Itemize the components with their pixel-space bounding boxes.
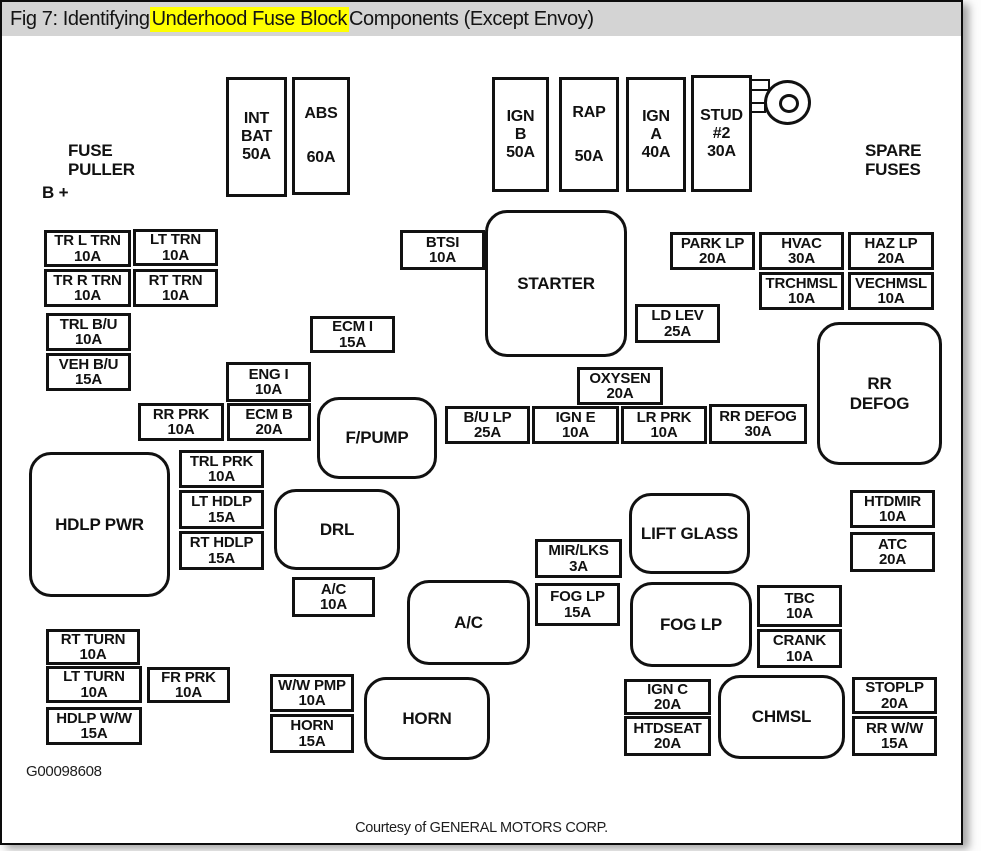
fuse-fr-prk-10a: FR PRK10A <box>147 667 230 703</box>
fuse-park-lp-20a: PARK LP20A <box>670 232 755 270</box>
fuse-label: 15A <box>299 734 326 750</box>
fuse-label: ABS <box>304 105 337 123</box>
fuse-puller-label-line2: PULLER <box>68 160 135 179</box>
relay-label: DRL <box>320 520 354 540</box>
relay-fog-lp: FOG LP <box>630 582 752 667</box>
fuse-label: 30A <box>745 424 772 440</box>
fuse-btsi-10a: BTSI10A <box>400 230 485 270</box>
fuse-label: INT <box>244 110 269 128</box>
fuse-label: HVAC <box>781 236 822 252</box>
fuse-label: RR PRK <box>153 407 209 423</box>
spare-fuses-label-line2: FUSES <box>865 160 921 179</box>
fuse-label: 30A <box>707 143 736 161</box>
fuse-label: TBC <box>784 591 814 607</box>
spare-fuses-label-line1: SPARE <box>865 141 921 160</box>
fuse-label: ECM B <box>245 407 292 423</box>
fuse-label: LR PRK <box>637 410 692 426</box>
fuse-trl-prk-10a: TRL PRK10A <box>179 450 264 488</box>
fuse-label: A <box>650 126 661 144</box>
fuse-tr-l-trn-10a: TR L TRN10A <box>44 230 131 267</box>
fuse-ld-lev-25a: LD LEV25A <box>635 304 720 343</box>
fuse-label: LT HDLP <box>191 494 252 510</box>
relay-label: STARTER <box>517 274 595 294</box>
relay-lift-glass: LIFT GLASS <box>629 493 750 574</box>
fuse-tbc-10a: TBC10A <box>757 585 842 627</box>
fuse-rap-50a: RAP50A <box>559 77 619 192</box>
fuse-trl-b-u-10a: TRL B/U10A <box>46 313 131 351</box>
ring-inner-circle <box>779 94 799 113</box>
fuse-ecm-i-15a: ECM I15A <box>310 316 395 353</box>
fuse-label: TRL PRK <box>190 454 253 470</box>
fuse-label: HDLP W/W <box>56 711 132 727</box>
fuse-label: A/C <box>321 582 346 598</box>
fuse-label: 50A <box>242 146 271 164</box>
fuse-crank-10a: CRANK10A <box>757 629 842 668</box>
fuse-ecm-b-20a: ECM B20A <box>227 403 311 441</box>
fuse-label: 10A <box>788 291 815 307</box>
fuse-int-bat-50a: INTBAT50A <box>226 77 287 197</box>
fuse-label: 10A <box>786 649 813 665</box>
fuse-label: RR DEFOG <box>719 409 797 425</box>
fuse-label: 3A <box>569 559 588 575</box>
fuse-w-w-pmp-10a: W/W PMP10A <box>270 674 354 712</box>
diagram-layer: FUSE PULLER B + SPARE FUSES G00098608 Co… <box>2 2 961 843</box>
fuse-label: BTSI <box>426 235 459 251</box>
fuse-label: 10A <box>74 249 101 265</box>
relay-hdlp-pwr: HDLP PWR <box>29 452 170 597</box>
fuse-label: 15A <box>208 551 235 567</box>
fuse-label: B <box>515 126 526 144</box>
fuse-label: 10A <box>562 425 589 441</box>
fuse-ign-b-50a: IGNB50A <box>492 77 549 192</box>
fuse-tr-r-trn-10a: TR R TRN10A <box>44 269 131 307</box>
fuse-label: PARK LP <box>681 236 744 252</box>
relay-f-pump: F/PUMP <box>317 397 437 479</box>
fuse-label: LT TURN <box>63 669 125 685</box>
fuse-stud-2-30a: STUD#230A <box>691 75 752 192</box>
relay-label: A/C <box>454 613 483 633</box>
fuse-label: 20A <box>607 386 634 402</box>
fuse-htdmir-10a: HTDMIR10A <box>850 490 935 528</box>
fuse-label: 10A <box>80 647 107 663</box>
fuse-label: STUD <box>700 107 743 125</box>
fuse-label: STOPLP <box>865 680 924 696</box>
fuse-label: 10A <box>208 469 235 485</box>
fuse-label: 15A <box>208 510 235 526</box>
fuse-label: 10A <box>320 597 347 613</box>
fuse-ign-e-10a: IGN E10A <box>532 406 619 444</box>
relay-label: FOG LP <box>660 615 722 635</box>
relay-drl: DRL <box>274 489 400 570</box>
fuse-label: VEH B/U <box>59 357 118 373</box>
relay-label: LIFT GLASS <box>641 524 738 544</box>
fuse-label: 10A <box>162 248 189 264</box>
fuse-label: 10A <box>81 685 108 701</box>
fuse-label: HAZ LP <box>865 236 918 252</box>
fuse-label: 15A <box>81 726 108 742</box>
fuse-oxysen-20a: OXYSEN20A <box>577 367 663 405</box>
fuse-label: IGN <box>507 108 535 126</box>
fuse-label: B/U LP <box>464 410 512 426</box>
fuse-label: OXYSEN <box>589 371 650 387</box>
fuse-label: #2 <box>713 125 730 143</box>
fuse-label: 20A <box>654 736 681 752</box>
fuse-label: LD LEV <box>651 308 703 324</box>
fuse-hdlp-w-w-15a: HDLP W/W15A <box>46 707 142 745</box>
fuse-puller-label-line1: FUSE <box>68 141 135 160</box>
fuse-atc-20a: ATC20A <box>850 532 935 572</box>
relay-label: DEFOG <box>850 394 909 414</box>
fuse-rr-w-w-15a: RR W/W15A <box>852 716 937 756</box>
fuse-lt-hdlp-15a: LT HDLP15A <box>179 490 264 529</box>
fuse-eng-i-10a: ENG I10A <box>226 362 311 402</box>
figure-id: G00098608 <box>26 763 102 780</box>
relay-horn: HORN <box>364 677 490 760</box>
fuse-rr-prk-10a: RR PRK10A <box>138 403 224 441</box>
fuse-label: 15A <box>75 372 102 388</box>
fuse-label: RR W/W <box>866 721 923 737</box>
fuse-rr-defog-30a: RR DEFOG30A <box>709 404 807 444</box>
fuse-vechmsl-10a: VECHMSL10A <box>848 272 934 310</box>
fuse-stoplp-20a: STOPLP20A <box>852 677 937 714</box>
fuse-lt-trn-10a: LT TRN10A <box>133 229 218 266</box>
fuse-label: 20A <box>881 696 908 712</box>
fuse-label: LT TRN <box>150 232 201 248</box>
fuse-lt-turn-10a: LT TURN10A <box>46 666 142 703</box>
fuse-rt-hdlp-15a: RT HDLP15A <box>179 531 264 570</box>
fuse-label: 25A <box>664 324 691 340</box>
fuse-label: TR L TRN <box>54 233 120 249</box>
fuse-label: IGN E <box>556 410 596 426</box>
fuse-label: 40A <box>642 144 671 162</box>
fuse-label: MIR/LKS <box>548 543 608 559</box>
relay-starter: STARTER <box>485 210 627 357</box>
fuse-label: 15A <box>564 605 591 621</box>
fuse-mir-lks-3a: MIR/LKS3A <box>535 539 622 578</box>
fuse-label: 10A <box>786 606 813 622</box>
relay-chmsl: CHMSL <box>718 675 845 759</box>
fuse-label: 50A <box>575 148 604 166</box>
relay-label: F/PUMP <box>345 428 408 448</box>
fuse-label: RT TURN <box>61 632 125 648</box>
fuse-label: HORN <box>290 718 333 734</box>
relay-a-c: A/C <box>407 580 530 665</box>
fuse-label: 20A <box>878 251 905 267</box>
fuse-ign-c-20a: IGN C20A <box>624 679 711 715</box>
fuse-label: TRL B/U <box>60 317 118 333</box>
fuse-label: BAT <box>241 128 272 146</box>
fuse-label: 15A <box>881 736 908 752</box>
fuse-puller-label: FUSE PULLER <box>68 141 135 179</box>
spare-fuse-ring-icon <box>746 76 818 130</box>
fuse-label: TR R TRN <box>53 273 121 289</box>
fuse-label: FOG LP <box>550 589 605 605</box>
fuse-label: 10A <box>878 291 905 307</box>
spare-fuses-label: SPARE FUSES <box>865 141 921 179</box>
b-plus-label: B + <box>42 183 68 202</box>
fuse-label: RAP <box>572 104 605 122</box>
fuse-label: 15A <box>339 335 366 351</box>
fuse-label: IGN <box>642 108 670 126</box>
fuse-label: 10A <box>75 332 102 348</box>
fuse-label: 20A <box>256 422 283 438</box>
fuse-label: 20A <box>879 552 906 568</box>
fuse-block-figure: Fig 7: Identifying Underhood Fuse Block … <box>0 0 963 845</box>
fuse-label: 10A <box>74 288 101 304</box>
fuse-label: 25A <box>474 425 501 441</box>
fuse-veh-b-u-15a: VEH B/U15A <box>46 353 131 391</box>
fuse-label: TRCHMSL <box>766 276 838 292</box>
fuse-abs-60a: ABS60A <box>292 77 350 195</box>
fuse-label: 20A <box>654 697 681 713</box>
fuse-label: 10A <box>651 425 678 441</box>
fuse-fog-lp-15a: FOG LP15A <box>535 583 620 626</box>
fuse-label: 60A <box>307 149 336 167</box>
fuse-rt-turn-10a: RT TURN10A <box>46 629 140 665</box>
fuse-label: 10A <box>429 250 456 266</box>
fuse-label: VECHMSL <box>855 276 927 292</box>
fuse-label: HTDMIR <box>864 494 921 510</box>
fuse-label: HTDSEAT <box>633 721 701 737</box>
courtesy-line: Courtesy of GENERAL MOTORS CORP. <box>2 820 961 836</box>
fuse-hvac-30a: HVAC30A <box>759 232 844 270</box>
fuse-ign-a-40a: IGNA40A <box>626 77 686 192</box>
fuse-label: RT HDLP <box>190 535 254 551</box>
fuse-label: 10A <box>168 422 195 438</box>
relay-label: CHMSL <box>752 707 811 727</box>
fuse-label: ECM I <box>332 319 373 335</box>
fuse-a-c-10a: A/C10A <box>292 577 375 617</box>
fuse-label: 30A <box>788 251 815 267</box>
relay-label: HDLP PWR <box>55 515 144 535</box>
fuse-rt-trn-10a: RT TRN10A <box>133 269 218 307</box>
fuse-label: 50A <box>506 144 535 162</box>
relay-label: HORN <box>402 709 451 729</box>
fuse-label: 10A <box>175 685 202 701</box>
fuse-b-u-lp-25a: B/U LP25A <box>445 406 530 444</box>
fuse-label: CRANK <box>773 633 826 649</box>
fuse-trchmsl-10a: TRCHMSL10A <box>759 272 844 310</box>
fuse-label: 10A <box>879 509 906 525</box>
fuse-label: ATC <box>878 537 907 553</box>
fuse-label: FR PRK <box>161 670 216 686</box>
fuse-label: IGN C <box>647 682 688 698</box>
fuse-label: 10A <box>299 693 326 709</box>
fuse-label: 20A <box>699 251 726 267</box>
fuse-horn-15a: HORN15A <box>270 714 354 753</box>
fuse-lr-prk-10a: LR PRK10A <box>621 406 707 444</box>
relay-rr-defog: RRDEFOG <box>817 322 942 465</box>
relay-label: RR <box>867 374 891 394</box>
fuse-label: RT TRN <box>149 273 203 289</box>
fuse-label: 10A <box>162 288 189 304</box>
fuse-label: W/W PMP <box>278 678 346 694</box>
fuse-label: 10A <box>255 382 282 398</box>
fuse-label: ENG I <box>249 367 289 383</box>
fuse-haz-lp-20a: HAZ LP20A <box>848 232 934 270</box>
fuse-htdseat-20a: HTDSEAT20A <box>624 716 711 756</box>
